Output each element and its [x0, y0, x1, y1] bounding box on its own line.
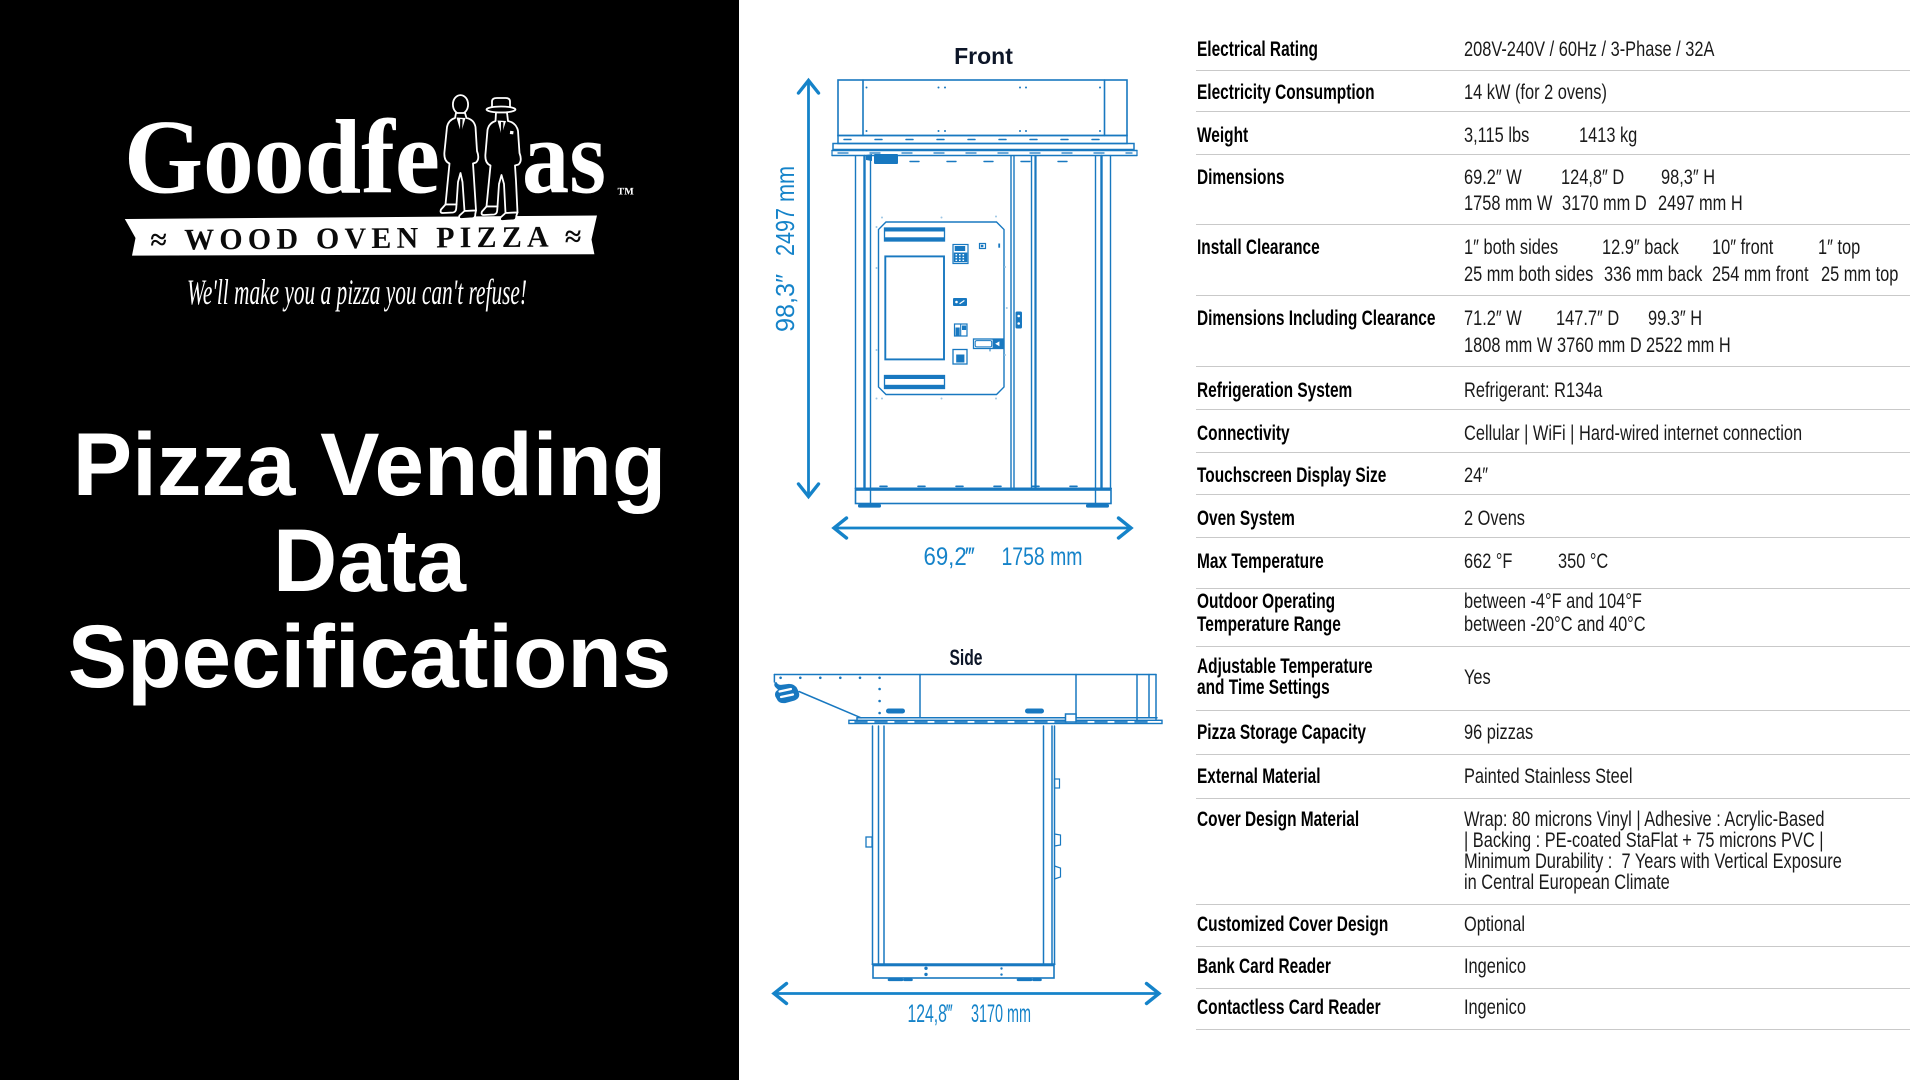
- svg-text:™: ™: [617, 184, 634, 203]
- svg-text:Goodfe: Goodfe: [124, 99, 440, 216]
- svg-text:124,8‴: 124,8‴: [908, 1000, 953, 1028]
- svg-text:Front: Front: [954, 43, 1013, 69]
- svg-text:as: as: [522, 99, 606, 216]
- svg-text:3170 mm: 3170 mm: [971, 1000, 1031, 1028]
- svg-text:≈ WOOD OVEN PIZZA ≈: ≈ WOOD OVEN PIZZA ≈: [150, 220, 586, 256]
- svg-text:1758 mm: 1758 mm: [1002, 543, 1083, 571]
- svg-text:2497 mm: 2497 mm: [770, 166, 800, 256]
- svg-text:We'll make you a pizza you can: We'll make you a pizza you can't refuse!: [187, 272, 527, 312]
- svg-text:69,2‴: 69,2‴: [924, 543, 975, 571]
- svg-text:98,3″: 98,3″: [770, 274, 800, 332]
- svg-text:Side: Side: [950, 645, 983, 670]
